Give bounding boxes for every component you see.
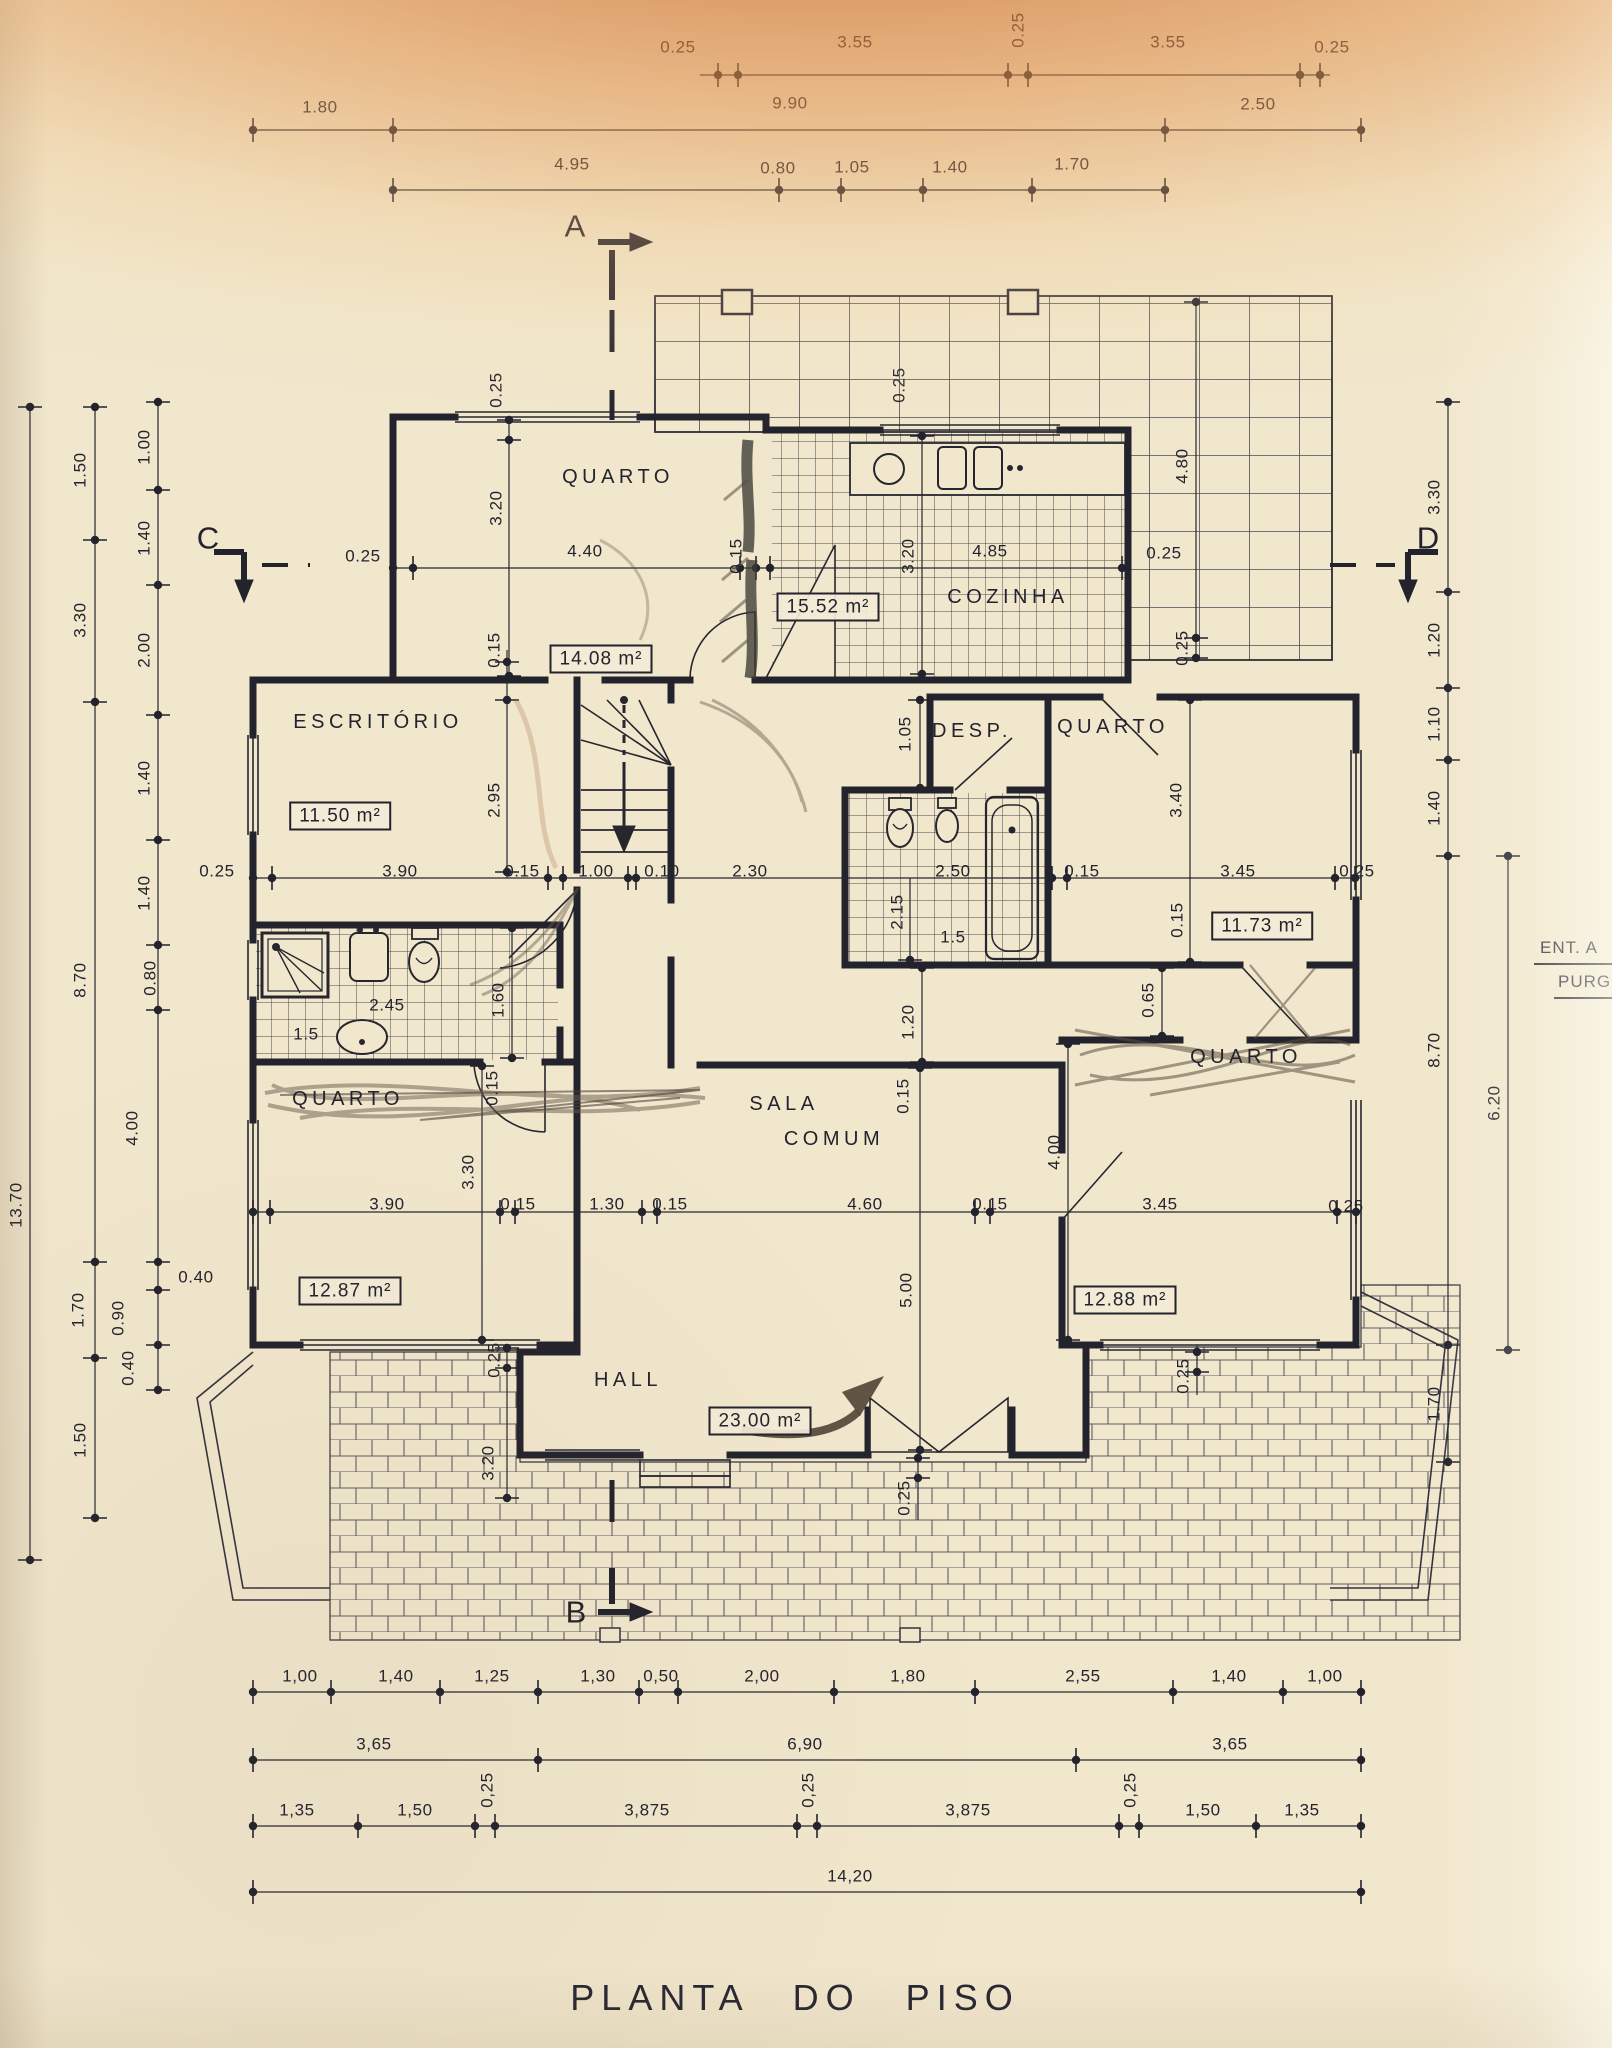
dim-label: 1,35 <box>279 1802 315 1819</box>
dim-label: 0.90 <box>110 1300 127 1336</box>
dim-label: 0.25 <box>1010 12 1027 48</box>
dim-label: 1.40 <box>136 520 153 556</box>
scanned-floor-plan-page: 0.25 3.55 0.25 3.55 0.25 1.80 9.90 2.50 … <box>0 0 1612 2048</box>
room-label-quarto-bl: QUARTO <box>292 1089 404 1109</box>
dim-label: 4.00 <box>124 1110 141 1146</box>
side-note-line2: PURG <box>1558 972 1611 992</box>
dim-label: 0.10 <box>644 863 680 880</box>
dim-label: 0.15 <box>972 1196 1008 1213</box>
dim-label: 2.50 <box>935 863 971 880</box>
dim-label: 4.85 <box>972 543 1008 560</box>
dim-label: 1,25 <box>474 1668 510 1685</box>
dim-label: 0,25 <box>479 1772 496 1808</box>
dim-label: 1.40 <box>932 159 968 176</box>
dim-label: 3,65 <box>356 1736 392 1753</box>
dim-label: 1.40 <box>1426 790 1443 826</box>
dim-label: 0.80 <box>142 960 159 996</box>
dim-label: 8.70 <box>72 962 89 998</box>
dim-label: 13.70 <box>8 1182 25 1228</box>
dim-label: 0.25 <box>1146 545 1182 562</box>
dim-label: 1,30 <box>580 1668 616 1685</box>
dim-label: 0.15 <box>652 1196 688 1213</box>
dim-label: 0.25 <box>660 39 696 56</box>
area-label-quarto-bl: 12.87 m² <box>299 1277 402 1306</box>
dim-label: 3.20 <box>488 490 505 526</box>
dim-label: 0,25 <box>800 1772 817 1808</box>
dim-label: 5.00 <box>898 1272 915 1308</box>
dim-label: 2.95 <box>486 782 503 818</box>
room-label-sala-2: COMUM <box>784 1129 884 1149</box>
dim-label: 1,35 <box>1284 1802 1320 1819</box>
dim-label: 3.45 <box>1220 863 1256 880</box>
dim-label: 0.25 <box>486 1342 503 1378</box>
dim-label: 1.50 <box>72 452 89 488</box>
dim-label: 1.70 <box>1426 1386 1443 1422</box>
area-label-quarto-br: 12.88 m² <box>1074 1286 1177 1315</box>
dim-label: 3.55 <box>837 34 873 51</box>
dim-label: 0.25 <box>488 372 505 408</box>
dim-label: 1.60 <box>490 982 507 1018</box>
dim-label: 3.90 <box>382 863 418 880</box>
dim-label: 14,20 <box>827 1868 873 1885</box>
dim-label: 3.45 <box>1142 1196 1178 1213</box>
dim-label: 1,00 <box>282 1668 318 1685</box>
dim-label: 1.05 <box>834 159 870 176</box>
dim-label: 2.30 <box>732 863 768 880</box>
dim-label: 0.25 <box>1314 39 1350 56</box>
dim-label: 1,00 <box>1307 1668 1343 1685</box>
dim-label: 3.30 <box>1426 479 1443 515</box>
room-label-sala: SALA <box>749 1094 818 1114</box>
dim-label: 9.90 <box>772 95 808 112</box>
dim-label: 1,80 <box>890 1668 926 1685</box>
dim-label: 1.40 <box>136 875 153 911</box>
dim-label: 0.15 <box>895 1078 912 1114</box>
dim-label: 0.40 <box>120 1350 137 1386</box>
dim-label: 8.70 <box>1426 1032 1443 1068</box>
dim-label: 0.25 <box>1328 1198 1364 1215</box>
dim-label: 0.15 <box>486 632 503 668</box>
area-label-sala: 23.00 m² <box>709 1407 812 1436</box>
dim-label: 1.70 <box>70 1292 87 1328</box>
dim-label: 0.25 <box>345 548 381 565</box>
room-label-quarto-br: QUARTO <box>1190 1047 1302 1067</box>
dim-label: 0.15 <box>1169 902 1186 938</box>
dim-label: 1.20 <box>900 1004 917 1040</box>
room-label-cozinha: COZINHA <box>947 587 1069 607</box>
dim-label: 4.00 <box>1046 1134 1063 1170</box>
dim-label: 2.45 <box>369 997 405 1014</box>
dim-label: 0.15 <box>504 863 540 880</box>
dim-label: 0.25 <box>199 863 235 880</box>
dim-label: 0,50 <box>643 1668 679 1685</box>
dim-label: 1,40 <box>378 1668 414 1685</box>
dim-label: 0.15 <box>1064 863 1100 880</box>
dim-label: 1.50 <box>72 1422 89 1458</box>
dim-label: 0.65 <box>1140 982 1157 1018</box>
dim-label: 4.95 <box>554 156 590 173</box>
dim-label: 2.15 <box>889 894 906 930</box>
dim-label: 0.25 <box>896 1480 913 1516</box>
dim-label: 3.90 <box>369 1196 405 1213</box>
dim-label: 0.25 <box>1339 863 1375 880</box>
dim-label: 1,50 <box>1185 1802 1221 1819</box>
section-marker-c-label: C <box>197 523 219 554</box>
room-label-quarto-tl: QUARTO <box>562 467 674 487</box>
dim-label: 0.15 <box>500 1196 536 1213</box>
dim-label: 0.25 <box>1175 1358 1192 1394</box>
area-label-escritorio: 11.50 m² <box>289 802 391 831</box>
dim-label: 1.00 <box>578 863 614 880</box>
dim-label: 3.40 <box>1168 782 1185 818</box>
room-label-desp: DESP. <box>932 721 1012 741</box>
side-note-line1: ENT. A <box>1540 938 1598 958</box>
room-label-quarto-tr: QUARTO <box>1057 717 1169 737</box>
drawing-title: PLANTA DO PISO <box>570 1980 1019 2016</box>
room-label-escritorio: ESCRITÓRIO <box>293 712 462 732</box>
labels-layer: 0.25 3.55 0.25 3.55 0.25 1.80 9.90 2.50 … <box>0 0 1612 2048</box>
dim-label: 1,40 <box>1211 1668 1247 1685</box>
dim-label: 1.30 <box>589 1196 625 1213</box>
section-marker-a-label: A <box>565 211 586 242</box>
dim-label: 2.00 <box>136 632 153 668</box>
area-label-cozinha: 15.52 m² <box>777 593 880 622</box>
dim-label: 1.5 <box>293 1026 318 1043</box>
dim-label: 4.60 <box>847 1196 883 1213</box>
dim-label: 1.40 <box>136 760 153 796</box>
section-marker-d-label: D <box>1417 523 1439 554</box>
dim-label: 2,55 <box>1065 1668 1101 1685</box>
dim-label: 1.5 <box>940 929 965 946</box>
dim-label: 2.50 <box>1240 96 1276 113</box>
dim-label: 3.30 <box>72 602 89 638</box>
dim-label: 6.20 <box>1486 1085 1503 1121</box>
area-label-quarto-tl: 14.08 m² <box>550 645 653 674</box>
section-marker-b-label: B <box>566 1597 587 1628</box>
dim-label: 3,875 <box>624 1802 670 1819</box>
dim-label: 1.00 <box>136 429 153 465</box>
dim-label: 1.20 <box>1426 622 1443 658</box>
dim-label: 1,50 <box>397 1802 433 1819</box>
dim-label: 0.15 <box>484 1070 501 1106</box>
dim-label: 1.70 <box>1054 156 1090 173</box>
dim-label: 0.25 <box>891 367 908 403</box>
dim-label: 0.15 <box>728 538 745 574</box>
room-label-hall: HALL <box>594 1370 662 1390</box>
dim-label: 3.30 <box>460 1154 477 1190</box>
dim-label: 6,90 <box>787 1736 823 1753</box>
dim-label: 3.20 <box>480 1445 497 1481</box>
dim-label: 1.80 <box>302 99 338 116</box>
area-label-quarto-tr: 11.73 m² <box>1211 912 1313 941</box>
dim-label: 3.20 <box>900 538 917 574</box>
dim-label: 3.55 <box>1150 34 1186 51</box>
dim-label: 0.80 <box>760 160 796 177</box>
dim-label: 2,00 <box>744 1668 780 1685</box>
dim-label: 0.25 <box>1174 630 1191 666</box>
dim-label: 0.40 <box>178 1269 214 1286</box>
dim-label: 0,25 <box>1122 1772 1139 1808</box>
dim-label: 4.80 <box>1174 448 1191 484</box>
dim-label: 3,65 <box>1212 1736 1248 1753</box>
dim-label: 4.40 <box>567 543 603 560</box>
dim-label: 1.10 <box>1426 706 1443 742</box>
dim-label: 3,875 <box>945 1802 991 1819</box>
dim-label: 1.05 <box>897 716 914 752</box>
